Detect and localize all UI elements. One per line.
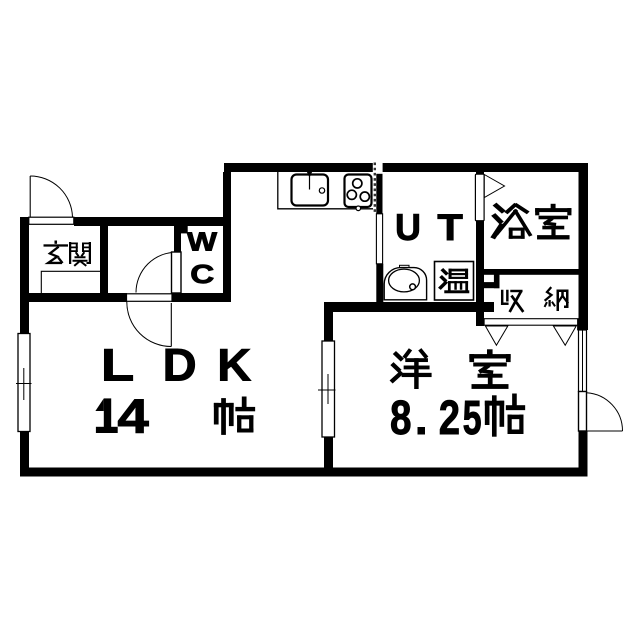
svg-text:T: T <box>437 206 463 248</box>
svg-text:5: 5 <box>463 392 482 445</box>
svg-text:W: W <box>187 227 218 257</box>
svg-text:K: K <box>217 340 252 391</box>
svg-text:4: 4 <box>117 391 149 444</box>
svg-text:D: D <box>163 340 197 391</box>
svg-text:C: C <box>190 259 214 289</box>
svg-text:2: 2 <box>439 392 460 445</box>
svg-text:U: U <box>395 206 421 248</box>
svg-text:8: 8 <box>390 392 412 445</box>
svg-text:L: L <box>101 340 134 391</box>
